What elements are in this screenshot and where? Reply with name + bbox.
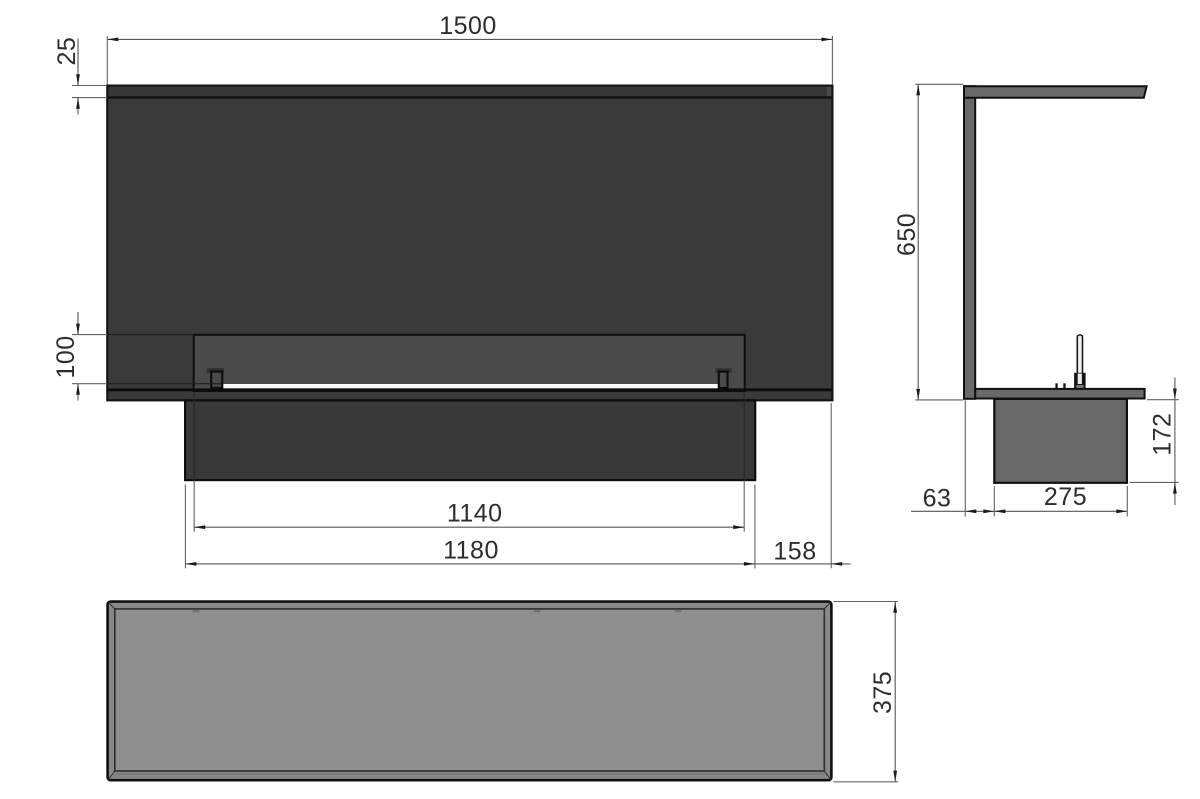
svg-text:1140: 1140 [447, 500, 503, 528]
svg-text:1500: 1500 [439, 12, 497, 40]
svg-text:275: 275 [1044, 483, 1087, 511]
svg-text:100: 100 [52, 335, 80, 378]
svg-text:158: 158 [773, 538, 816, 566]
svg-text:63: 63 [923, 485, 952, 513]
svg-text:1180: 1180 [443, 537, 499, 565]
svg-text:375: 375 [869, 671, 897, 714]
svg-text:172: 172 [1149, 413, 1177, 456]
svg-text:25: 25 [53, 37, 81, 66]
svg-text:650: 650 [893, 213, 921, 256]
